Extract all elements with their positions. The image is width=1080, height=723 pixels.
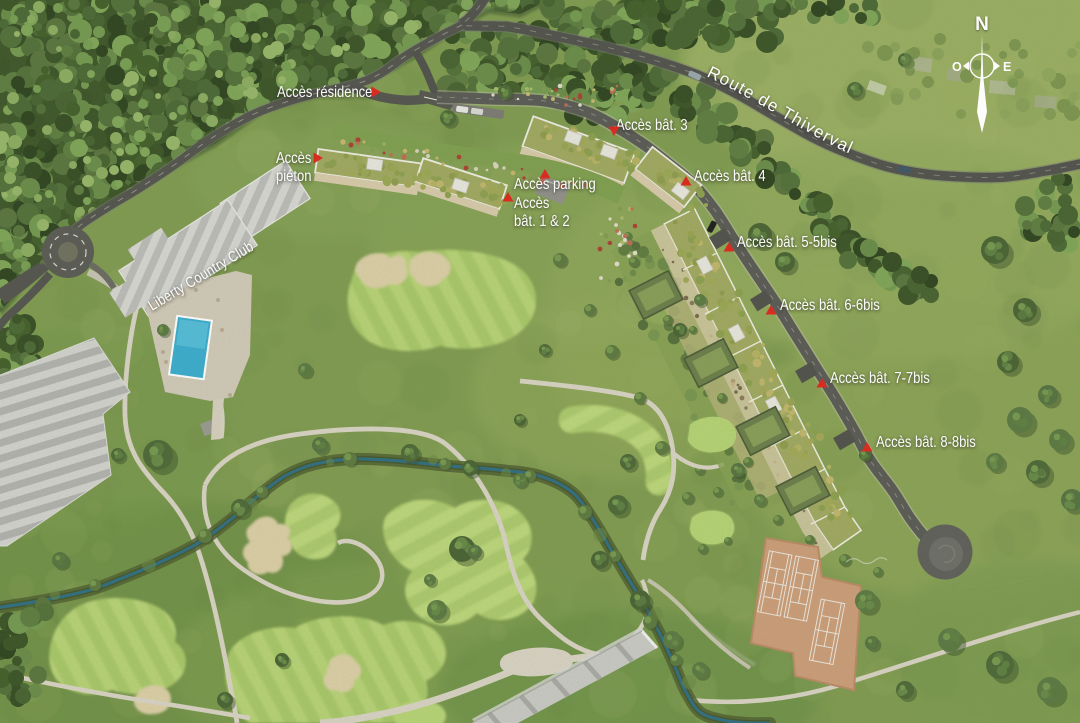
svg-text:Accès parking: Accès parking bbox=[514, 176, 596, 193]
svg-text:E: E bbox=[1003, 60, 1011, 74]
svg-text:bât. 1 & 2: bât. 1 & 2 bbox=[514, 213, 570, 230]
svg-text:O: O bbox=[952, 60, 962, 74]
svg-text:Accès bât. 6-6bis: Accès bât. 6-6bis bbox=[780, 297, 880, 314]
svg-text:N: N bbox=[975, 14, 989, 35]
svg-text:Accès bât. 8-8bis: Accès bât. 8-8bis bbox=[876, 434, 976, 451]
svg-text:Accès: Accès bbox=[276, 150, 311, 167]
svg-text:piéton: piéton bbox=[276, 168, 311, 185]
svg-text:Accès bât. 4: Accès bât. 4 bbox=[694, 168, 766, 185]
svg-text:Accès: Accès bbox=[514, 195, 549, 212]
svg-text:Accès bât. 3: Accès bât. 3 bbox=[616, 117, 688, 134]
svg-text:Accès bât. 5-5bis: Accès bât. 5-5bis bbox=[737, 234, 837, 251]
svg-text:Accès bât. 7-7bis: Accès bât. 7-7bis bbox=[830, 370, 930, 387]
svg-text:Accès résidence: Accès résidence bbox=[277, 84, 372, 101]
